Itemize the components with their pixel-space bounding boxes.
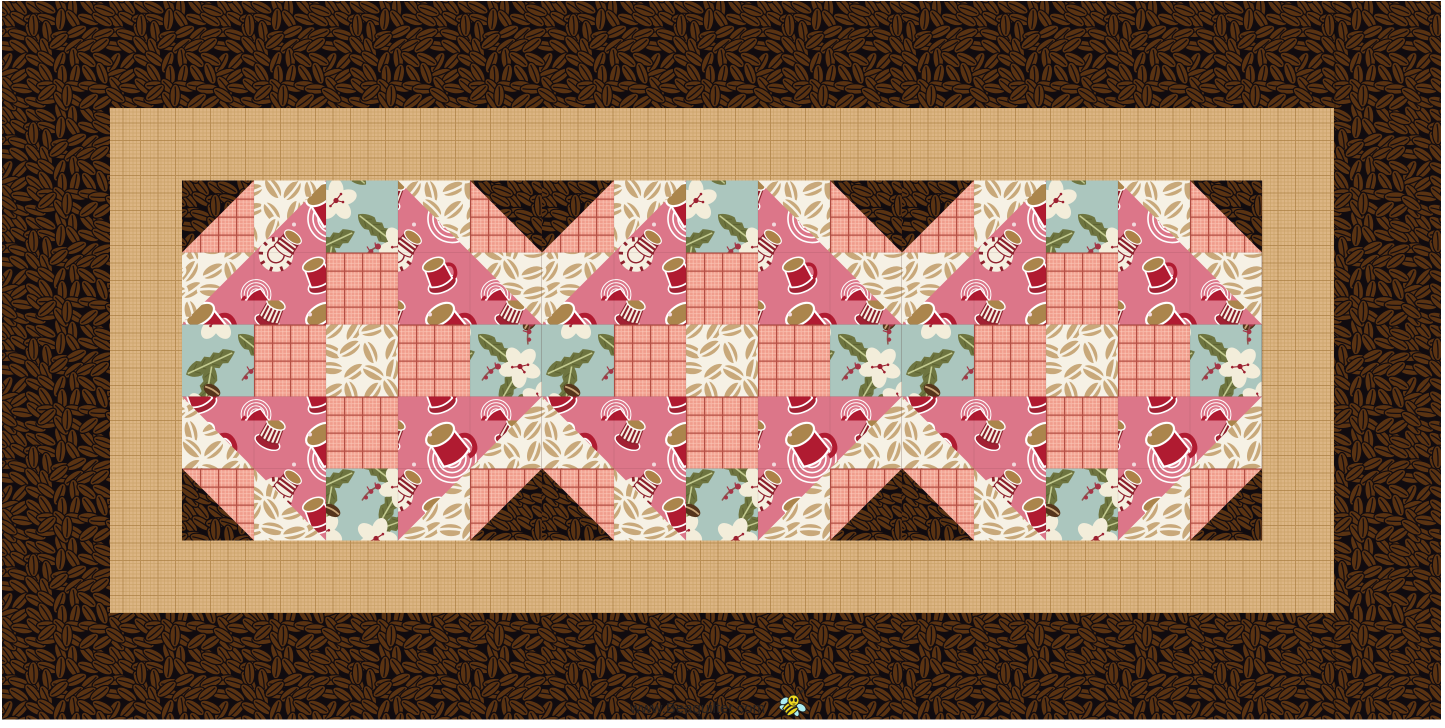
svg-text:www.Beaquilter.com: www.Beaquilter.com — [629, 700, 765, 717]
